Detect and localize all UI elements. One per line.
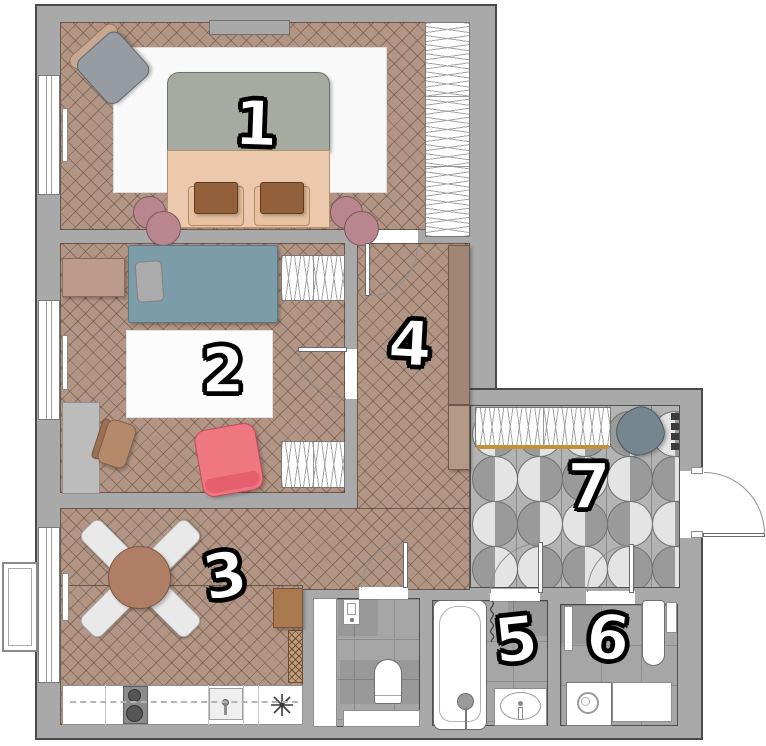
bedroom-wardrobe: [425, 22, 470, 237]
water-heater: [343, 599, 360, 625]
entry-door-arc: [704, 472, 765, 534]
window-sill: [62, 335, 68, 390]
exterior-ac-unit: [2, 562, 38, 652]
bedroom-pouf: [146, 211, 181, 246]
floor-pattern-circle: [607, 456, 653, 502]
laundry-shelf: [666, 602, 677, 633]
floor-pattern-circle: [517, 456, 563, 502]
living-room-window: [38, 300, 60, 420]
bathroom-faucet-stem: [518, 707, 523, 720]
entry-door-hinge-mark: [691, 531, 703, 538]
closet-divider: [313, 256, 314, 300]
closet-divider: [313, 442, 314, 487]
wardrobe-divider: [543, 408, 544, 446]
kitchen-window: [38, 527, 60, 683]
fridge-snowflake-icon: [268, 691, 296, 719]
entry-door-hinge-mark: [691, 467, 703, 474]
floor-pattern-circle: [652, 546, 681, 588]
wardrobe-divider: [426, 96, 469, 97]
toilet-seat-line: [375, 695, 401, 701]
radiator-fin: [671, 433, 679, 440]
room-number-7: 7: [567, 456, 610, 518]
room-number-2: 2: [201, 340, 244, 402]
bathtub-drain-line: [465, 708, 467, 730]
living-closet-bottom: [281, 441, 345, 488]
kitchen-faucet-stem: [224, 706, 227, 715]
pink-armchair: [193, 421, 266, 499]
floor-pattern-circle: [517, 501, 563, 547]
wc-mat: [343, 710, 420, 727]
kitchen-cabinet-brown: [273, 588, 303, 628]
living-room-door-opening: [345, 349, 357, 399]
floor-pattern-circle: [472, 456, 518, 502]
floor-pattern-circle: [607, 501, 653, 547]
bed-pillow-brown: [194, 182, 238, 214]
room-number-5: 5: [491, 607, 540, 673]
water-heater-dot: [350, 618, 354, 622]
room-number-1: 1: [233, 92, 278, 155]
floor-pattern-circle: [472, 501, 518, 547]
laundry-counter: [612, 682, 672, 722]
bedroom-window: [38, 75, 60, 195]
hall-cabinet-upper: [448, 245, 470, 405]
hall-cabinet-lower: [448, 405, 470, 470]
living-rug: [126, 330, 273, 418]
window-sill: [62, 108, 68, 162]
living-closet-top: [281, 255, 345, 301]
wardrobe-divider: [426, 166, 469, 167]
floor-pattern-circle: [652, 501, 681, 547]
single-bed-pillow: [135, 260, 165, 303]
ventilation-shaft: [288, 630, 303, 683]
toilet: [374, 659, 402, 704]
entry-wardrobe: [475, 407, 611, 447]
entry-door-opening: [680, 471, 703, 538]
floor-plan: 1 2 3 4 5 6 7: [0, 0, 766, 746]
counter-divider: [258, 685, 259, 725]
entry-radiator: [670, 412, 680, 456]
radiator-fin: [671, 413, 679, 420]
kitchen-counter: [62, 685, 303, 725]
wc-tall-cabinet: [313, 598, 337, 727]
floor-pattern-circle: [652, 456, 681, 502]
washer-drum-inner: [581, 697, 590, 706]
radiator-fin: [671, 423, 679, 430]
dining-table: [108, 546, 171, 609]
radiator-fin: [671, 443, 679, 450]
laundry-shelf: [564, 606, 573, 651]
wall-pier: [209, 20, 290, 35]
counter-divider: [243, 685, 244, 725]
room-number-6: 6: [583, 605, 632, 671]
water-heater-panel: [347, 603, 356, 615]
wc-door-opening: [359, 587, 408, 599]
counter-divider: [105, 685, 106, 725]
bathroom-faucet: [518, 701, 523, 706]
stove-burner: [126, 705, 143, 722]
bedroom-pouf: [344, 211, 379, 246]
entry-wardrobe-gold-strip: [477, 445, 609, 449]
living-dresser: [62, 258, 125, 297]
room-number-4: 4: [387, 312, 433, 376]
counter-dash-line: [70, 701, 298, 703]
bed-pillow-brown: [260, 182, 304, 214]
toilet: [642, 600, 665, 666]
window-sill: [62, 573, 69, 621]
